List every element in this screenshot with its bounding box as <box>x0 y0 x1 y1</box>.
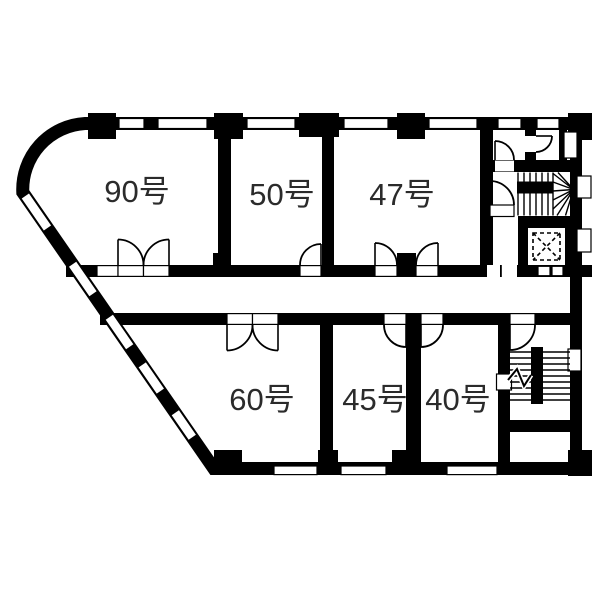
room-50-label: 50号 <box>249 177 314 212</box>
window <box>429 119 477 129</box>
window <box>344 119 388 129</box>
wall-47-core <box>480 130 493 277</box>
pier <box>397 113 425 139</box>
pier <box>568 450 592 476</box>
window <box>498 119 521 129</box>
floor-plan: 90号 50号 47号 60号 45号 40号 <box>0 0 600 600</box>
window <box>274 466 317 475</box>
elevator-right-wall <box>565 228 577 265</box>
corridor-pier <box>397 253 416 277</box>
room-60-label: 60号 <box>229 382 294 417</box>
window <box>341 466 386 475</box>
window <box>447 466 497 475</box>
window <box>564 132 577 158</box>
window <box>577 176 591 198</box>
stair-handrail <box>531 347 543 404</box>
wall-50-47 <box>322 130 334 265</box>
floor-plan-page: 90号 50号 47号 60号 45号 40号 <box>0 0 600 600</box>
window <box>158 119 207 129</box>
lower-stair-bottom-wall <box>498 420 582 432</box>
window <box>577 229 591 252</box>
wall-90-50 <box>218 130 231 265</box>
pier <box>214 450 242 464</box>
stair-handrail <box>517 182 553 194</box>
wall-60-45 <box>320 325 333 463</box>
corridor-pier <box>213 253 228 277</box>
window <box>247 119 295 129</box>
elevator-left-wall <box>518 216 528 265</box>
room-47-label: 47号 <box>369 177 434 212</box>
room-40-label: 40号 <box>425 382 490 417</box>
room-90-label: 90号 <box>104 174 169 209</box>
window <box>119 119 144 129</box>
wall-45-40 <box>406 325 421 463</box>
room-45-label: 45号 <box>342 382 407 417</box>
window <box>537 119 559 129</box>
pier <box>88 113 116 139</box>
